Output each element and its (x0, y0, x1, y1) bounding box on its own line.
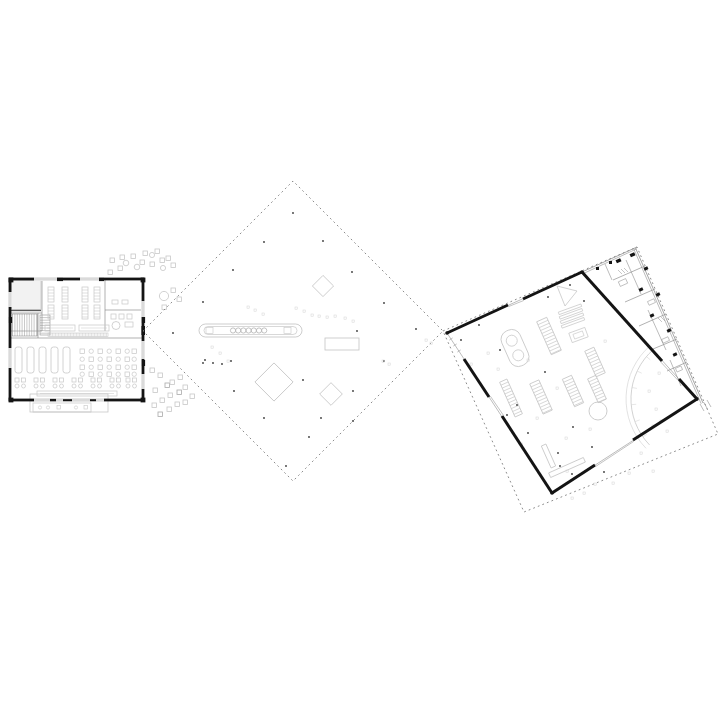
right-surround-marks (559, 400, 711, 499)
right-service-block (582, 247, 703, 404)
right-plan-walls (445, 270, 699, 495)
plan-svg (0, 0, 720, 720)
middle-dashed-diamond (143, 181, 443, 481)
right-dashed-square (443, 247, 718, 512)
left-outdoor-furniture (108, 249, 232, 416)
architectural-drawing-page (0, 0, 720, 720)
left-plan-interior (10, 280, 143, 412)
